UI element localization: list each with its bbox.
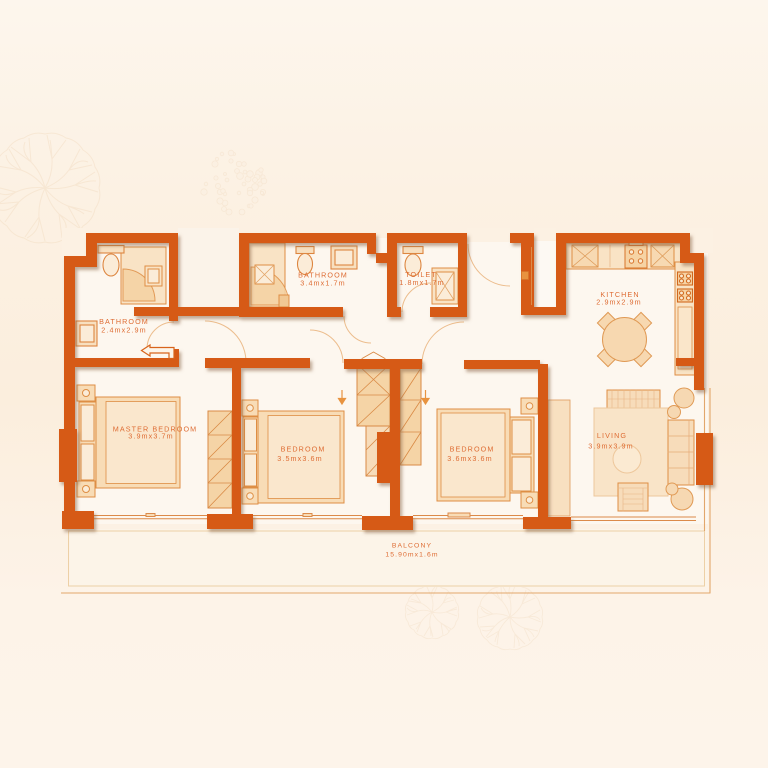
- svg-text:3.9mx3.7m: 3.9mx3.7m: [128, 432, 173, 441]
- svg-text:2.9mx2.9m: 2.9mx2.9m: [596, 298, 641, 307]
- svg-text:1.8mx1.7m: 1.8mx1.7m: [399, 278, 444, 287]
- svg-text:15.90mx1.6m: 15.90mx1.6m: [385, 552, 438, 559]
- svg-text:3.4mx1.7m: 3.4mx1.7m: [300, 279, 345, 288]
- svg-text:BALCONY: BALCONY: [392, 543, 432, 550]
- svg-text:2.4mx2.9m: 2.4mx2.9m: [101, 326, 146, 335]
- svg-text:3.5mx3.6m: 3.5mx3.6m: [277, 454, 322, 463]
- svg-text:3.6mx3.6m: 3.6mx3.6m: [447, 454, 492, 463]
- svg-text:LIVING: LIVING: [597, 431, 627, 440]
- svg-text:3.9mx3.9m: 3.9mx3.9m: [588, 442, 633, 451]
- svg-text:BEDROOM: BEDROOM: [450, 445, 495, 454]
- svg-text:BEDROOM: BEDROOM: [281, 445, 326, 454]
